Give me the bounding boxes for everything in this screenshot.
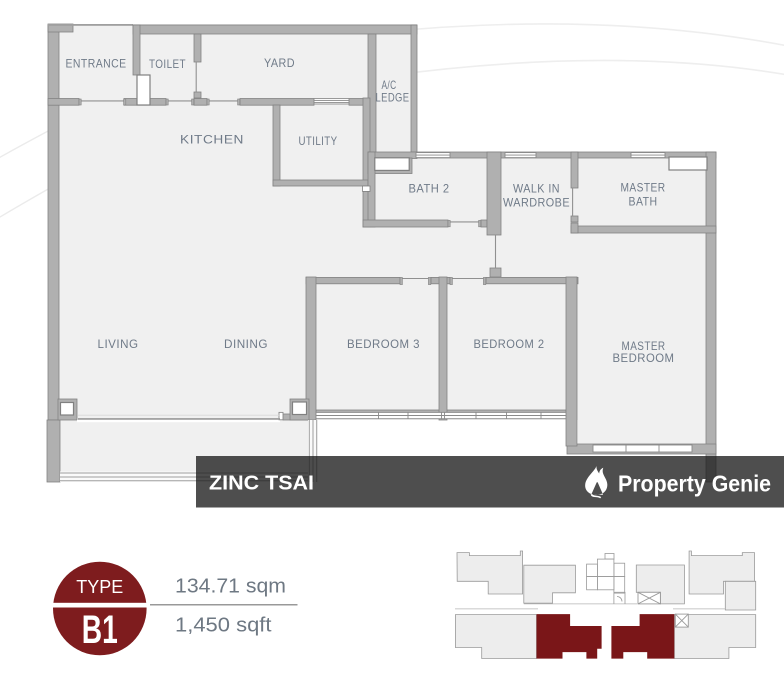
svg-text:MASTER: MASTER [621, 181, 666, 195]
svg-text:KITCHEN: KITCHEN [180, 133, 244, 147]
svg-text:BEDROOM 2: BEDROOM 2 [474, 337, 545, 351]
svg-text:1,450 sqft: 1,450 sqft [175, 613, 272, 636]
svg-text:DINING: DINING [224, 337, 268, 351]
svg-text:TYPE: TYPE [76, 576, 123, 597]
svg-text:TOILET: TOILET [149, 57, 186, 71]
svg-text:Property Genie: Property Genie [618, 470, 771, 496]
svg-text:ZINC TSAI: ZINC TSAI [209, 471, 314, 494]
svg-text:LEDGE: LEDGE [376, 91, 410, 105]
svg-text:UTILITY: UTILITY [299, 134, 338, 148]
svg-text:YARD: YARD [264, 56, 295, 70]
svg-text:BEDROOM: BEDROOM [613, 351, 675, 365]
svg-text:WARDROBE: WARDROBE [503, 196, 570, 210]
svg-text:B1: B1 [82, 608, 118, 652]
svg-text:LIVING: LIVING [98, 337, 139, 351]
svg-text:134.71 sqm: 134.71 sqm [175, 574, 286, 597]
svg-text:BATH: BATH [629, 195, 658, 209]
svg-text:BATH 2: BATH 2 [409, 182, 450, 196]
svg-text:ENTRANCE: ENTRANCE [66, 57, 127, 71]
svg-text:BEDROOM 3: BEDROOM 3 [347, 337, 420, 351]
svg-text:WALK IN: WALK IN [513, 182, 560, 196]
